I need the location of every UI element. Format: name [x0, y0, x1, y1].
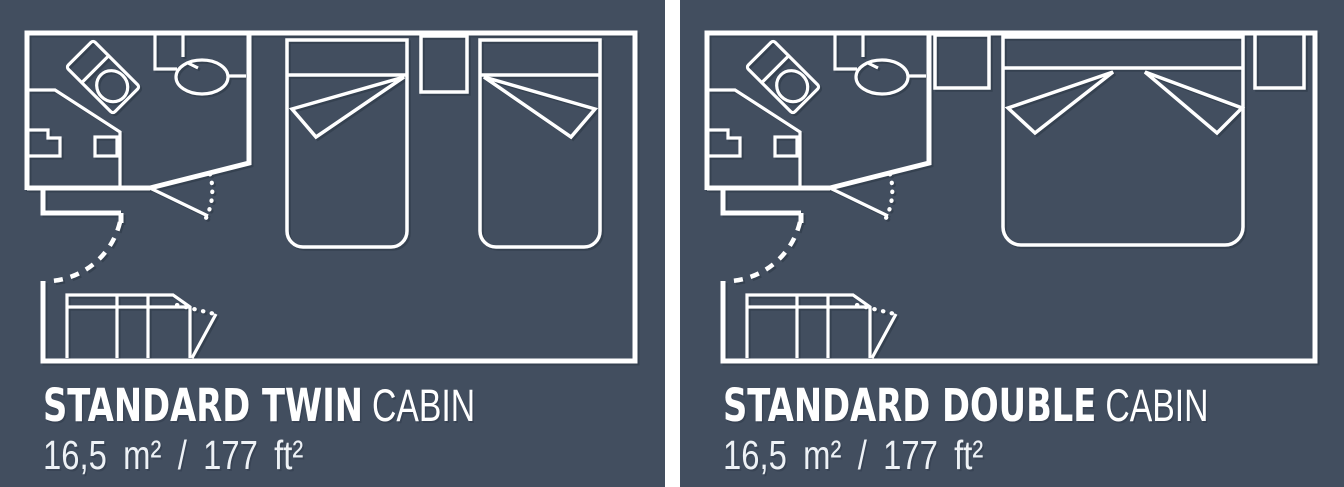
cabin-title-suffix: CABIN	[1105, 380, 1208, 431]
nightstand-right-icon	[1255, 33, 1304, 88]
single-bed-right-icon	[480, 40, 600, 247]
floor-plan-standard-twin	[0, 0, 665, 375]
faucet-icon	[868, 63, 878, 68]
cabin-title: STANDARD TWINCABIN	[43, 383, 475, 428]
single-bed-left-icon	[287, 40, 407, 247]
sink-shelf	[155, 34, 183, 69]
cabin-caption: STANDARD DOUBLECABIN 16,5 m² / 177 ft²	[723, 383, 1344, 476]
sink-shelf	[835, 34, 863, 69]
cabin-area: 16,5 m² / 177 ft²	[43, 435, 504, 476]
sink-icon	[835, 34, 926, 94]
cabin-panel-standard-double: STANDARD DOUBLECABIN 16,5 m² / 177 ft²	[680, 0, 1344, 487]
entry-door-swing	[731, 222, 800, 281]
shower-step	[27, 130, 60, 156]
blanket-fold-left-icon	[1008, 72, 1113, 133]
faucet-icon	[188, 63, 198, 68]
blanket-fold-icon	[484, 77, 595, 137]
wardrobe-door-leaf	[192, 314, 216, 358]
bathroom-door-leaf	[150, 188, 208, 216]
cabin-title-emphasis: STANDARD DOUBLE	[723, 379, 1096, 432]
shower-drain	[775, 137, 797, 156]
shower-drain	[95, 137, 117, 156]
double-bed-icon	[1003, 37, 1243, 245]
cabin-caption: STANDARD TWINCABIN 16,5 m² / 177 ft²	[43, 383, 619, 476]
cabin-panel-standard-twin: STANDARD TWINCABIN 16,5 m² / 177 ft²	[0, 0, 665, 487]
sink-icon	[155, 34, 246, 94]
blanket-fold-icon	[292, 77, 404, 137]
floor-plan-standard-double	[680, 0, 1344, 375]
wardrobe-icon	[67, 295, 219, 358]
entry-door-swing	[51, 222, 120, 281]
cabin-area: 16,5 m² / 177 ft²	[723, 435, 1241, 476]
nightstand-left-icon	[935, 35, 989, 88]
cabin-comparison: STANDARD TWINCABIN 16,5 m² / 177 ft²	[0, 0, 1344, 487]
shower-step	[707, 130, 740, 156]
nightstand-icon	[421, 36, 467, 92]
bathroom-door-leaf	[830, 188, 888, 216]
wardrobe-door-leaf	[872, 314, 896, 358]
cabin-title-emphasis: STANDARD TWIN	[43, 379, 363, 432]
wardrobe-icon	[747, 295, 899, 358]
cabin-title-suffix: CABIN	[372, 380, 475, 431]
cabin-title: STANDARD DOUBLECABIN	[723, 383, 1209, 428]
blanket-fold-right-icon	[1145, 72, 1242, 133]
